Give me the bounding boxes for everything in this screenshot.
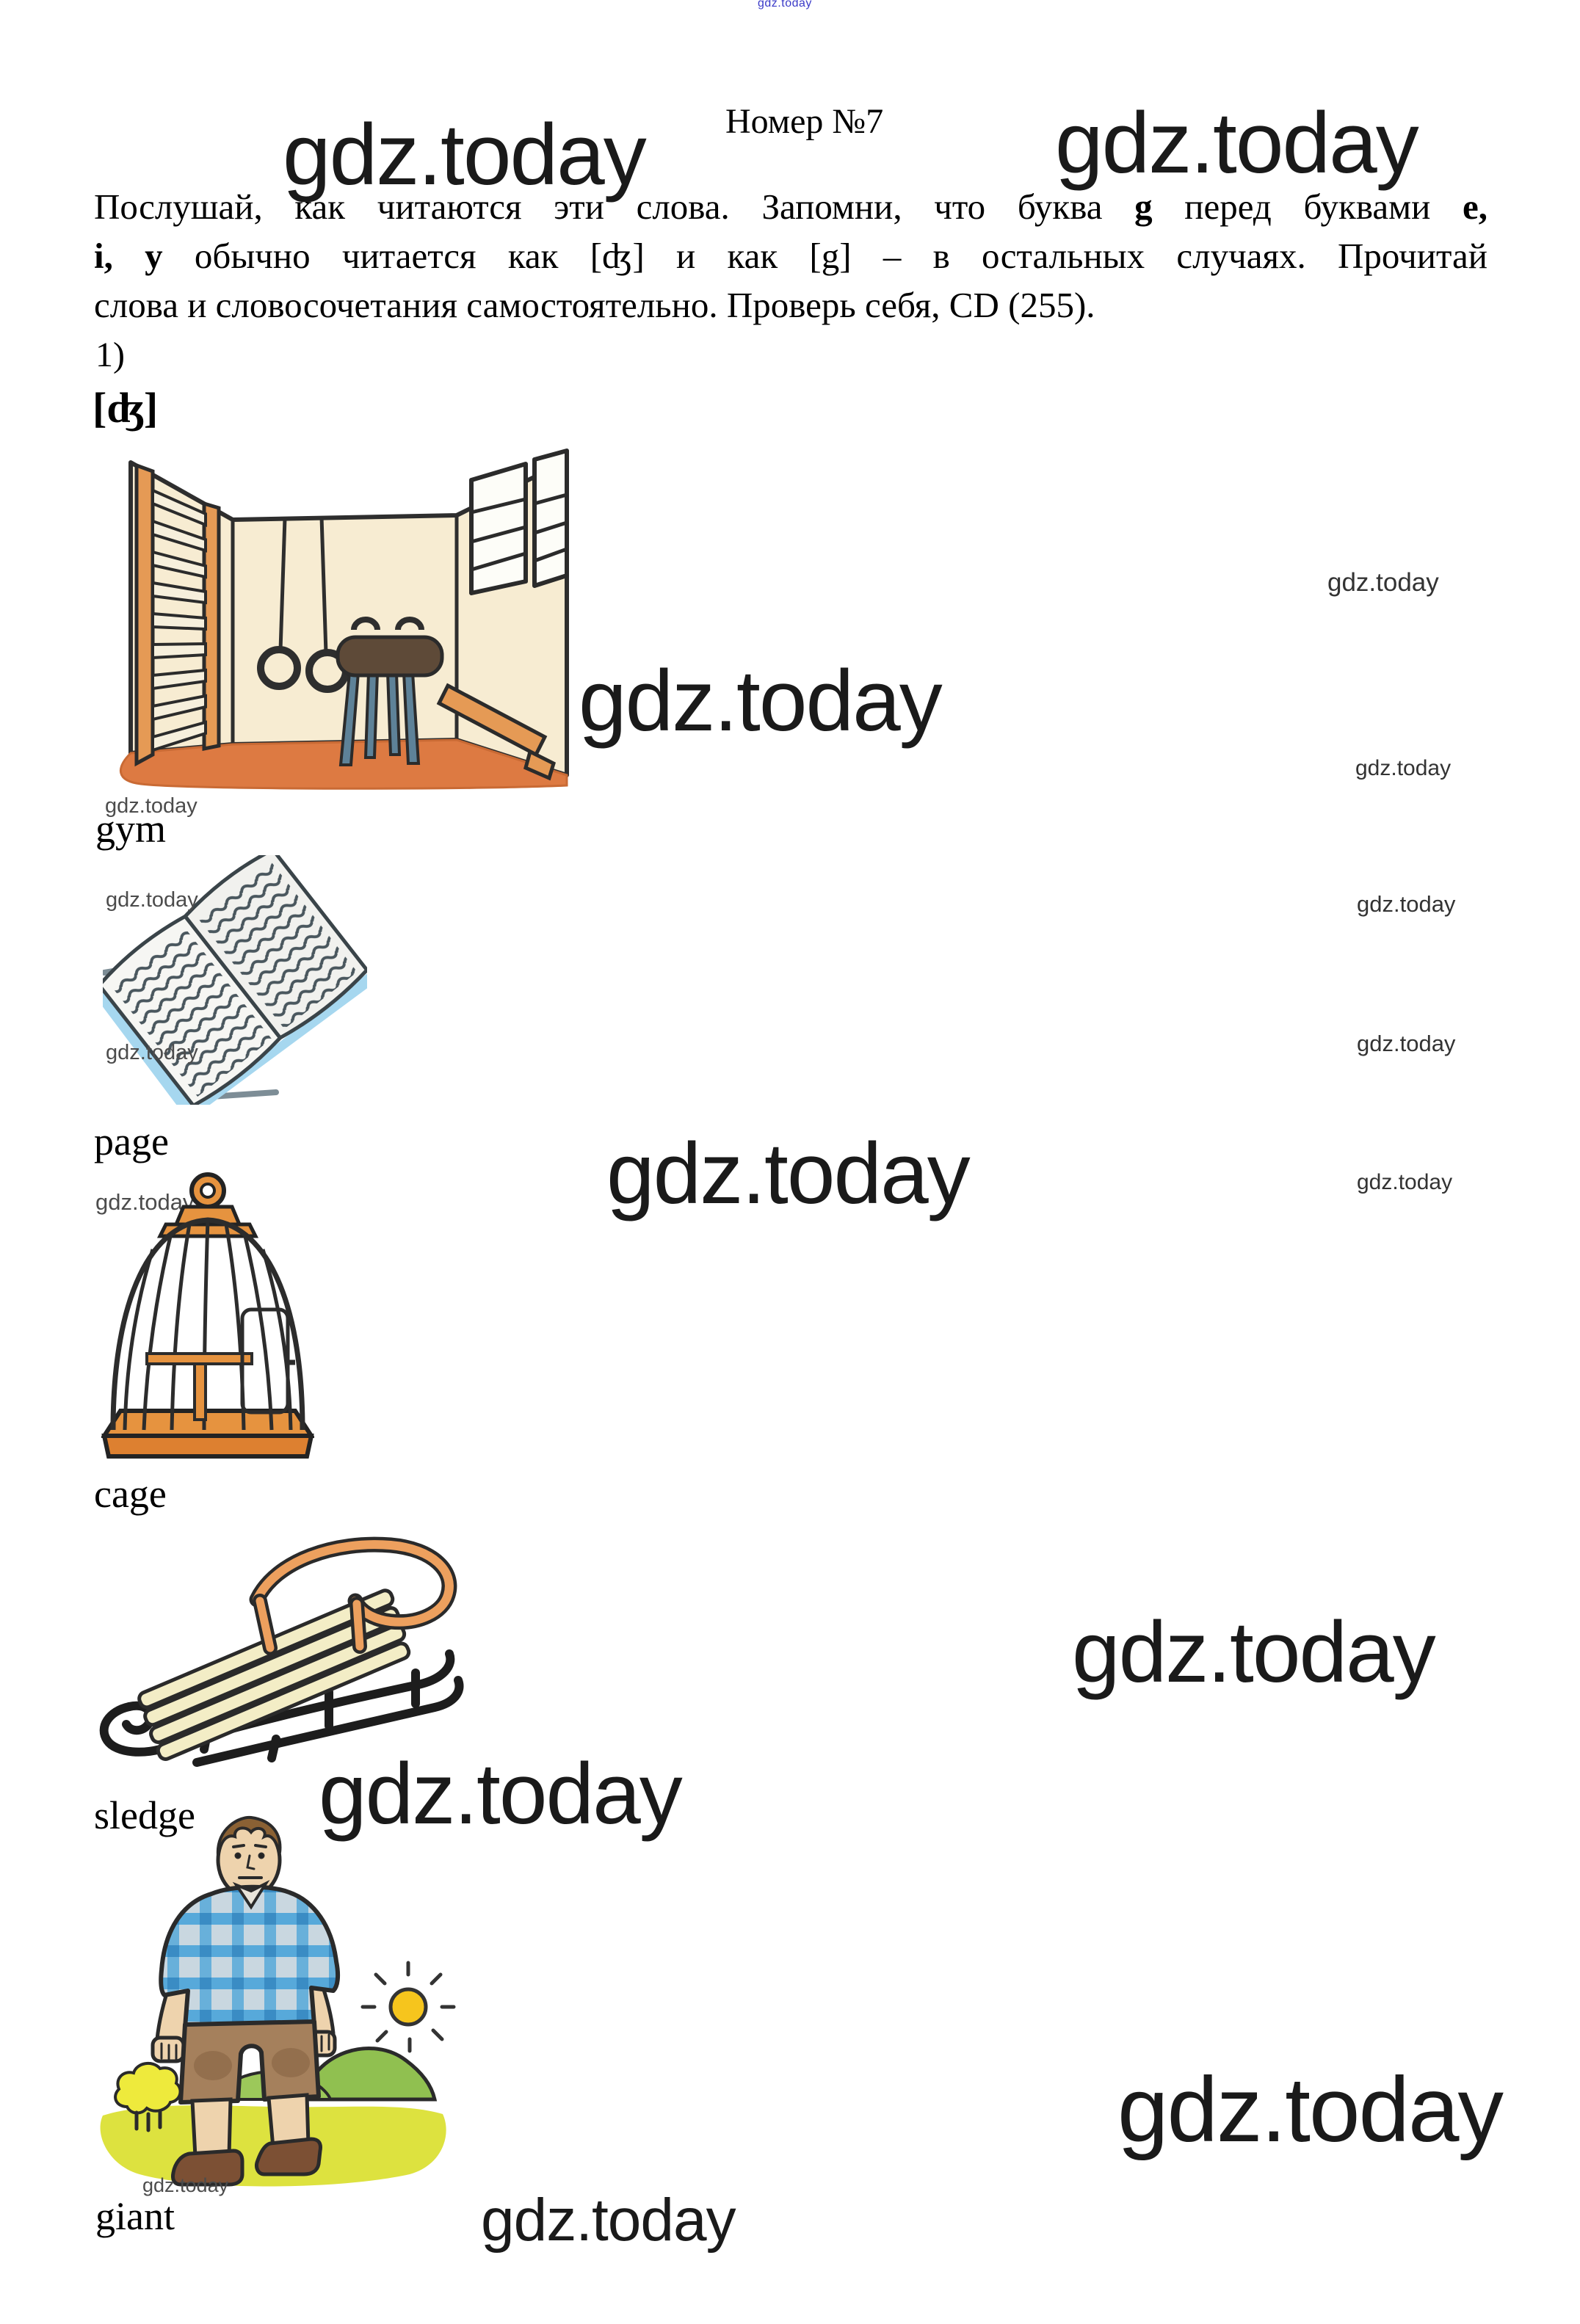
watermark-gdz-today: gdz.today [1355,758,1451,780]
watermark-gdz-today: gdz.today [481,2190,736,2251]
word-label-cage: cage [94,1473,167,1516]
instruction-line-3: слова и словосочетания самостоятельно. П… [94,280,1487,330]
instruction-text: перед буквами [1153,186,1463,227]
sledge-illustration [87,1529,468,1775]
instruction-paragraph: Послушай, как читаются эти слова. Запомн… [94,182,1487,330]
watermark-gdz-today: gdz.today [758,0,812,10]
gym-illustration [95,437,569,790]
watermark-gdz-today: gdz.today [142,2176,228,2196]
instruction-text: слова и словосочетания самостоятельно. П… [94,285,1095,325]
watermark-gdz-today: gdz.today [1357,1032,1455,1055]
watermark-gdz-today: gdz.today [606,1130,969,1217]
watermark-gdz-today: gdz.today [1055,100,1418,186]
watermark-gdz-today: gdz.today [106,1042,198,1064]
word-label-giant: giant [95,2195,175,2238]
instruction-line-2: i, y обычно читается как [ʤ] и как [g] –… [94,231,1487,280]
instruction-line-1: Послушай, как читаются эти слова. Запомн… [94,182,1487,231]
item-marker: 1) [95,336,125,375]
page-title: Номер №7 [725,103,883,142]
instruction-bold-g: g [1134,186,1153,227]
phonetic-label: [ʤ] [93,385,158,432]
watermark-gdz-today: gdz.today [1357,1172,1452,1194]
instruction-bold-e: e, [1463,186,1487,227]
watermark-gdz-today: gdz.today [1327,570,1439,595]
word-label-gym: gym [95,807,166,851]
watermark-gdz-today: gdz.today [579,658,941,744]
cage-illustration [101,1170,314,1464]
gym-room-drawing [95,437,569,790]
instruction-bold-iy: i, y [94,236,163,276]
birdcage-drawing [101,1170,314,1464]
watermark-gdz-today: gdz.today [1072,1609,1435,1696]
watermark-gdz-today: gdz.today [1357,893,1455,915]
watermark-gdz-today: gdz.today [1117,2064,1502,2156]
word-label-page: page [94,1120,169,1163]
sledge-drawing [87,1529,468,1775]
watermark-gdz-today: gdz.today [106,890,198,911]
worksheet-page: gdz.today Номер №7 gdz.today gdz.today П… [0,0,1580,2324]
instruction-text: обычно читается как [ʤ] и как [g] – в ос… [163,236,1487,276]
instruction-text: Послушай, как читаются эти слова. Запомн… [94,186,1134,227]
